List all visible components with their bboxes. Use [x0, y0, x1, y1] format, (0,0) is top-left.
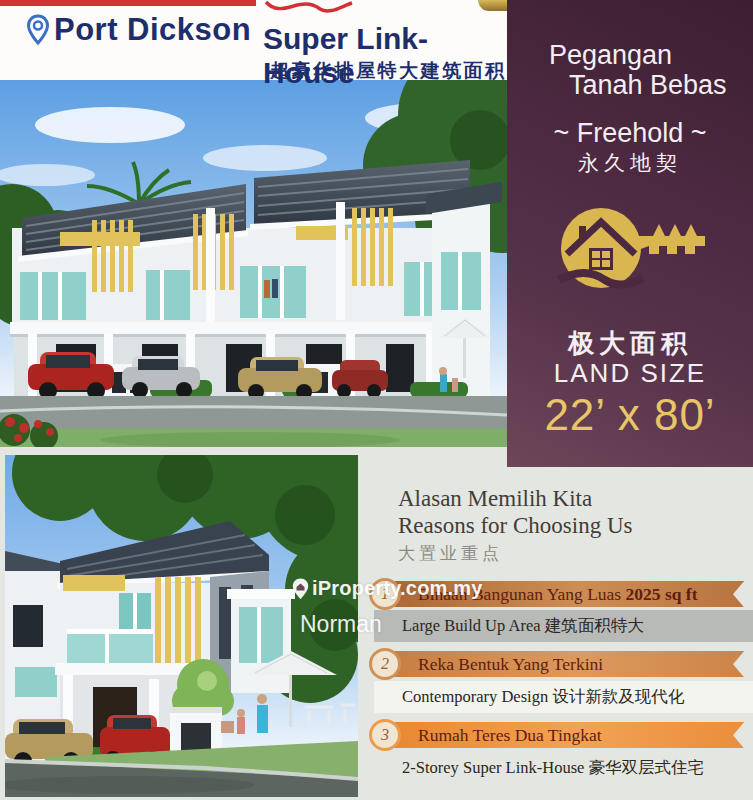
reason-detail-3: 2-Storey Super Link-House 豪华双层式住宅 [374, 752, 753, 784]
watermark-pin-icon [292, 578, 309, 600]
reasons-section: Alasan Memilih Kita Reasons for Choosing… [374, 447, 753, 800]
top-house-render-image [0, 80, 507, 447]
sidebar: Pegangan Tanah Bebas ~ Freehold ~ 永久地契 极… [507, 0, 753, 467]
reason-heading: Rumah Teres Dua Tingkat [418, 725, 602, 746]
watermark-brand: iProperty.com.my [292, 577, 483, 600]
reasons-title-chinese: 大置业重点 [398, 542, 753, 565]
reason-heading-bold: 2025 sq ft [626, 584, 698, 604]
red-top-bar [0, 0, 256, 6]
location-name: Port Dickson [54, 12, 251, 48]
property-flyer: Port Dickson Super Link-House 超豪华排屋特大建筑面… [0, 0, 753, 800]
script-logo-remnant [262, 0, 354, 16]
reason-ribbon-3: 3 Rumah Teres Dua Tingkat [378, 722, 744, 748]
listing-subtitle-chinese: 超豪华排屋特大建筑面积 [270, 58, 507, 84]
reason-heading-text: Reka Bentuk Yang Terkini [418, 654, 603, 674]
reasons-title-english: Reasons for Choosing Us [398, 512, 753, 539]
tenure-line1: Pegangan [549, 40, 672, 71]
ribbon-notch [733, 722, 744, 748]
watermark-brand-text: iProperty.com.my [312, 577, 483, 600]
ribbon-notch [733, 581, 744, 607]
location-pin-icon [26, 14, 50, 46]
reason-number-badge: 2 [369, 648, 401, 680]
reason-heading: Reka Bentuk Yang Terkini [418, 654, 603, 675]
reason-detail-1: Large Build Up Area 建筑面积特大 [374, 610, 753, 642]
land-size-label: LAND SIZE [507, 358, 753, 389]
house-key-icon [557, 196, 707, 300]
land-size-chinese: 极大面积 [507, 326, 753, 361]
reasons-title-malay: Alasan Memilih Kita [398, 485, 753, 512]
header: Port Dickson Super Link-House 超豪华排屋特大建筑面… [0, 0, 507, 80]
reasons-title: Alasan Memilih Kita Reasons for Choosing… [398, 485, 753, 539]
reason-number-badge: 3 [369, 719, 401, 751]
freehold-label: ~ Freehold ~ [507, 118, 753, 149]
tenure-line2: Tanah Bebas [569, 70, 727, 101]
watermark-agent: Norman [300, 611, 382, 638]
freehold-label-chinese: 永久地契 [507, 149, 753, 177]
reason-heading-text: Rumah Teres Dua Tingkat [418, 725, 602, 745]
land-size-value: 22’ x 80’ [507, 390, 753, 440]
reason-ribbon-2: 2 Reka Bentuk Yang Terkini [378, 651, 744, 677]
ribbon-notch [733, 651, 744, 677]
reason-detail-2: Contemporary Design 设计新款及现代化 [374, 681, 753, 713]
